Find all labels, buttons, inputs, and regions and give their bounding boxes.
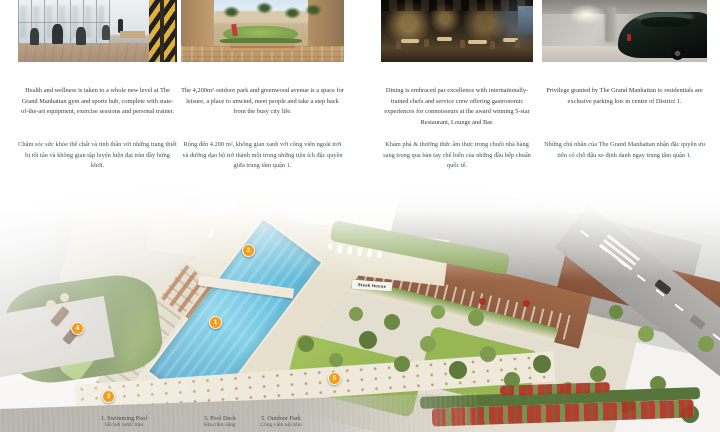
dining-chair [396, 41, 401, 49]
gym-photo [18, 0, 177, 62]
dining-table [437, 37, 452, 41]
gym-text-en: Health and wellness is taken to a whole … [18, 86, 177, 117]
legend-label-vn: Khu tắm nắng [188, 422, 252, 429]
palm-tree [305, 4, 322, 16]
restaurant-photo [381, 0, 533, 62]
parking-photo [542, 0, 707, 62]
exercise-machine [30, 28, 39, 45]
car-tail-light [627, 34, 631, 41]
red-umbrella [523, 300, 530, 307]
restaurant-window [518, 6, 533, 34]
legend-swimming-pool: 1. Swimming Pool Hồ bơi nước tràn [80, 415, 168, 429]
dining-chair [424, 39, 429, 47]
umbrella [60, 293, 69, 302]
red-umbrella [479, 298, 486, 305]
marker-2: 2 [242, 244, 255, 257]
red-sculpture [231, 23, 238, 36]
reception-desk [120, 31, 145, 38]
yellow-stripe-panel [149, 0, 160, 62]
park-building-left [181, 0, 214, 53]
scattered-trees [0, 188, 12, 200]
exercise-machine [102, 25, 110, 40]
exercise-machine [76, 27, 86, 45]
marker-4: 4 [71, 322, 84, 335]
park-steps [230, 43, 295, 51]
marker-outdoor-park: 5 [328, 372, 341, 385]
brochure-page: Health and wellness is taken to a whole … [0, 0, 720, 432]
marker-swimming-pool: 1 [209, 316, 222, 329]
park-text-en: The 4,200m² outdoor park and greenwood a… [181, 86, 344, 117]
dining-text-vn: Khám phá & thưởng thức ẩm thực trong chu… [381, 140, 533, 171]
dining-chair [460, 40, 465, 48]
garage-pillar [605, 7, 617, 41]
car-wheel [671, 47, 684, 60]
umbrella [46, 300, 56, 310]
exercise-machine [52, 24, 63, 44]
legend-pool-deck: 3. Pool Deck Khu tắm nắng [188, 415, 252, 429]
yellow-stripe-panel [164, 0, 175, 62]
garage-light-glow [568, 4, 604, 25]
legend-label-vn: Hồ bơi nước tràn [80, 422, 168, 429]
restaurant-ceiling [381, 0, 533, 11]
gym-text-vn: Chăm sóc sức khỏe thể chất và tinh thần … [18, 140, 177, 171]
marker-pool-deck: 3 [102, 390, 115, 403]
legend-label-vn: Công viên nội khu [244, 422, 318, 429]
dining-chair [515, 40, 520, 48]
car-window [641, 17, 691, 28]
dining-table [401, 39, 419, 43]
dining-table [468, 40, 488, 44]
legend-label-en: 5. Outdoor Park [244, 415, 318, 422]
park-photo [181, 0, 344, 62]
park-text-vn: Rộng đến 4.200 m², không gian xanh với c… [181, 140, 344, 171]
parking-text-vn: Những chủ nhân của The Grand Manhattan n… [542, 140, 707, 161]
masterplan-render: Steak House 1 2 3 4 5 1. Swimming Pool H… [0, 188, 720, 432]
legend-outdoor-park: 5. Outdoor Park Công viên nội khu [244, 415, 318, 429]
dining-text-en: Dining is embraced par excellence with i… [381, 86, 533, 128]
parking-text-en: Privilege granted by The Grand Manhattan… [542, 86, 707, 107]
dining-chair [490, 41, 495, 49]
